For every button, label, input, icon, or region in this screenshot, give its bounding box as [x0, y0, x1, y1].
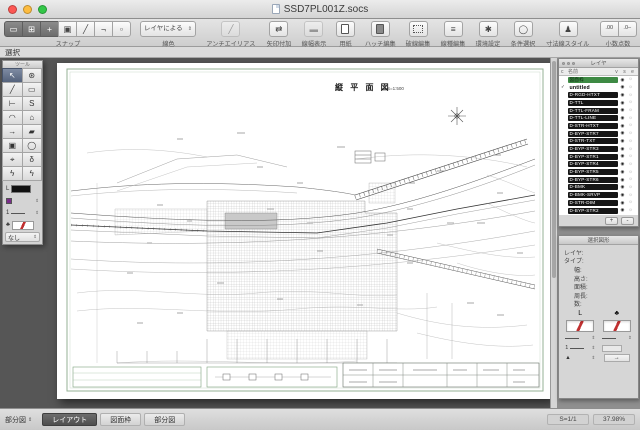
eye-icon[interactable]: ◉ — [619, 93, 626, 98]
antialias-button[interactable]: ╱ — [221, 21, 240, 37]
col-name: 名前 — [568, 68, 612, 75]
zoom-indicator[interactable]: 37.98% — [593, 414, 635, 425]
layer-row-D-BMK-SRVP[interactable]: D-BMK-SRVP◉☼ — [559, 191, 638, 199]
stepper-icon[interactable]: ⇕ — [35, 198, 39, 204]
layer-row-D-RGD-HTXT[interactable]: D-RGD-HTXT◉☼ — [559, 91, 638, 99]
right-panel-column: レイヤ c 名前 v s e 図面枠◉☼✓untitled◉☼D-RGD-HTX… — [557, 58, 640, 408]
eye-icon[interactable]: ◉ — [619, 201, 626, 206]
line-width-value: 1 — [6, 210, 9, 216]
print-icon[interactable]: ☼ — [627, 147, 634, 152]
sheet-selector-value: 部分図 — [5, 415, 26, 425]
fill-style-well[interactable] — [603, 320, 631, 332]
window-titlebar: SSD7PL001Z.socs — [0, 0, 640, 19]
layer-list: 図面枠◉☼✓untitled◉☼D-RGD-HTXT◉☼D-TTL◉☼D-TTL… — [559, 76, 638, 215]
print-icon[interactable]: ☼ — [627, 185, 634, 190]
zoom-window-button[interactable] — [38, 5, 47, 14]
hatch-edit-button[interactable] — [371, 21, 390, 37]
dashed-box-icon — [413, 25, 423, 33]
north-arrow — [448, 107, 466, 125]
dash-edit-button[interactable] — [409, 21, 428, 37]
print-icon[interactable]: ☼ — [627, 77, 634, 82]
line-color-dropdown[interactable]: レイヤによる ⇕ — [140, 21, 196, 37]
arrow-tool[interactable]: → — [2, 124, 23, 139]
print-icon[interactable]: ☼ — [627, 208, 634, 213]
window-title-text: SSD7PL001Z.socs — [284, 4, 369, 15]
layer-name-badge[interactable]: D-BMK — [568, 184, 618, 190]
line-width-display-group: ▬ 線幅表示 — [301, 21, 327, 48]
layer-name-badge[interactable]: untitled — [568, 85, 618, 91]
eye-icon[interactable]: ◉ — [619, 85, 626, 90]
arc-tool[interactable]: ◠ — [2, 110, 23, 125]
cad-drawing: 縦 平 面 図 S=1:500 — [57, 63, 551, 399]
document-icon — [272, 4, 280, 14]
pan-tool[interactable]: ⊛ — [22, 68, 43, 83]
line-attr-header: L — [578, 310, 582, 318]
layer-row-D-BMK[interactable]: D-BMK◉☼ — [559, 184, 638, 192]
tool-grid: ↖⊛╱▭⊢S◠⌂→▰▣◯⌖δϟϟ — [3, 69, 42, 181]
eye-icon[interactable]: ◉ — [619, 108, 626, 113]
tool-attribute-controls: L ⇕ 1 ⇕ ♣ なし ⇕ — [3, 181, 42, 244]
antialias-icon: ╱ — [228, 25, 233, 34]
print-icon[interactable]: ☼ — [627, 108, 634, 113]
snap-mode-2[interactable]: + — [40, 21, 59, 37]
layer-row-D-BYP-STR2[interactable]: D-BYP-STR2◉☼ — [559, 207, 638, 215]
selection-info-titlebar: 選択図形 — [559, 236, 638, 245]
info-field-4: 面積: — [564, 282, 633, 291]
image-tool[interactable]: ▣ — [2, 138, 23, 153]
hatch-edit-group: ハッチ編集 — [364, 21, 397, 48]
eye-icon[interactable]: ◉ — [619, 116, 626, 121]
eye-icon[interactable]: ◉ — [619, 162, 626, 167]
spline-tool[interactable]: S — [22, 96, 43, 111]
line-color-value: レイヤによる — [144, 26, 183, 33]
eye-icon[interactable]: ◉ — [619, 131, 626, 136]
tool-palette: ツール ↖⊛╱▭⊢S◠⌂→▰▣◯⌖δϟϟ L ⇕ 1 ⇕ ♣ — [2, 60, 43, 245]
layer-name-badge[interactable]: D-TTL — [568, 100, 618, 106]
snap-mode-6[interactable]: ▫ — [112, 21, 131, 37]
print-icon[interactable]: ☼ — [627, 193, 634, 198]
linetype-edit-group: ≡ 線種編集 — [440, 21, 466, 48]
workspace: 縦 平 面 図 S=1:500 — [0, 58, 640, 408]
eye-icon[interactable]: ◉ — [619, 147, 626, 152]
info-field-2: 幅: — [564, 265, 633, 274]
snap-mode-5[interactable]: ¬ — [94, 21, 113, 37]
layer-row-D-BYP-STR6[interactable]: D-BYP-STR6◉☼ — [559, 176, 638, 184]
window-title: SSD7PL001Z.socs — [0, 4, 640, 15]
polygon-tool[interactable]: ⌂ — [22, 110, 43, 125]
traffic-lights — [8, 5, 47, 14]
print-icon[interactable]: ☼ — [627, 200, 634, 205]
layers-palette-titlebar: レイヤ — [559, 59, 638, 68]
line-width-display-button[interactable]: ▬ — [304, 21, 323, 37]
scrollbar-thumb[interactable] — [552, 61, 556, 278]
line-style-none-preview — [12, 221, 34, 230]
layer-name-badge[interactable]: D-TTL-LINE — [568, 115, 618, 121]
print-icon[interactable]: ☼ — [627, 177, 634, 182]
line-attr-column: L ⇕ 1⇕ ▲⇕ — [563, 310, 597, 362]
layer-name-badge[interactable]: 図面枠 — [568, 77, 618, 83]
select-tool[interactable]: ↖ — [2, 68, 23, 83]
col-visible: v — [613, 69, 620, 75]
layer-row-D-TTL-FRAM[interactable]: D-TTL-FRAM◉☼ — [559, 107, 638, 115]
arrow-add-icon: ⇄ — [275, 25, 282, 34]
layer-name-badge[interactable]: D-RGD-HTXT — [568, 92, 618, 98]
pen-color-control[interactable]: ⇕ — [5, 196, 40, 206]
layer-name-badge[interactable]: D-STR-TXT — [568, 138, 618, 144]
eye-icon[interactable]: ◉ — [619, 78, 626, 83]
fill-style-stepper[interactable]: ⇕ — [602, 334, 632, 342]
stamp-icon: ♟ — [564, 25, 572, 34]
line-style-stepper[interactable]: ⇕ — [565, 334, 595, 342]
info-field-0: レイヤ: — [564, 248, 633, 257]
line-width-value: 1 — [565, 345, 568, 351]
chevron-updown-icon: ⇕ — [33, 234, 37, 240]
layer-row-D-TTL-LINE[interactable]: D-TTL-LINE◉☼ — [559, 114, 638, 122]
stepper-icon[interactable]: ⇕ — [35, 210, 39, 216]
arrow-style-dropdown[interactable]: なし ⇕ — [5, 232, 40, 242]
zap-tool-2[interactable]: ϟ — [22, 166, 43, 181]
layer-name-badge[interactable]: D-STR-HTXT — [568, 123, 618, 129]
print-icon[interactable]: ☼ — [627, 139, 634, 144]
bottom-status-bar: 部分図 ⇕ レイアウト図面枠部分図 S=1/1 37.98% — [0, 408, 640, 430]
print-icon[interactable]: ☼ — [627, 123, 634, 128]
linetype-edit-button[interactable]: ≡ — [444, 21, 463, 37]
paper-group: 用紙 — [336, 21, 355, 48]
tab-部分図[interactable]: 部分図 — [144, 413, 185, 426]
canvas-vertical-scrollbar[interactable] — [550, 58, 557, 408]
marker-stepper[interactable]: ▲⇕ — [565, 354, 595, 362]
eye-icon[interactable]: ◉ — [619, 208, 626, 213]
line-width-preview — [11, 213, 25, 214]
layer-row-D-BYP-STR3[interactable]: D-BYP-STR3◉☼ — [559, 145, 638, 153]
tab-レイアウト[interactable]: レイアウト — [42, 413, 97, 426]
layer-name-badge[interactable]: D-BYP-STR7 — [568, 131, 618, 137]
layer-name-badge[interactable]: D-BYP-STR2 — [568, 208, 618, 214]
chevron-updown-icon: ⇕ — [188, 27, 192, 32]
sheet-selector-dropdown[interactable]: 部分図 ⇕ — [5, 415, 32, 425]
print-icon[interactable]: ☼ — [627, 131, 634, 136]
eye-icon[interactable]: ◉ — [619, 154, 626, 159]
line-tool[interactable]: ╱ — [2, 82, 23, 97]
print-icon[interactable]: ☼ — [627, 154, 634, 159]
lines-icon: ≡ — [451, 25, 456, 34]
mode-label: 選択 — [5, 47, 20, 58]
tab-図面枠[interactable]: 図面枠 — [100, 413, 141, 426]
snap-mode-4[interactable]: ╱ — [76, 21, 95, 37]
arrow-end-button[interactable]: → — [604, 354, 630, 362]
info-field-3: 高さ: — [564, 274, 633, 283]
dimension-style-button[interactable]: ♟ — [559, 21, 578, 37]
snap-mode-3[interactable]: ▣ — [58, 21, 77, 37]
remove-layer-button[interactable]: - — [621, 217, 634, 225]
layer-row-D-STR-TXT[interactable]: D-STR-TXT◉☼ — [559, 138, 638, 146]
layers-palette-title: レイヤ — [559, 59, 638, 67]
layer-name-badge[interactable]: D-BMK-SRVP — [568, 192, 618, 198]
print-icon[interactable]: ☼ — [627, 170, 634, 175]
circle-tool[interactable]: ◯ — [22, 138, 43, 153]
layer-name-badge[interactable]: D-TTL-FRAM — [568, 108, 618, 114]
selection-info-title: 選択図形 — [559, 236, 638, 244]
eye-icon[interactable]: ◉ — [619, 193, 626, 198]
eye-icon[interactable]: ◉ — [619, 101, 626, 106]
print-icon[interactable]: ☼ — [627, 85, 634, 90]
layers-palette: レイヤ c 名前 v s e 図面枠◉☼✓untitled◉☼D-RGD-HTX… — [558, 58, 639, 227]
legend-title-block — [73, 363, 539, 387]
preferences-group: ✱ 環境設定 — [475, 21, 501, 48]
sheet-scale-text: S=1:500 — [387, 86, 404, 91]
eye-icon[interactable]: ◉ — [619, 178, 626, 183]
zap-tool-1[interactable]: ϟ — [2, 166, 23, 181]
layer-name-badge[interactable]: D-BYP-STR3 — [568, 146, 618, 152]
snap-segments: ▭⊞+▣╱¬▫ — [4, 21, 131, 37]
polyline-tool[interactable]: ⊢ — [2, 96, 23, 111]
layer-row-D-TTL[interactable]: D-TTL◉☼ — [559, 99, 638, 107]
marker-icon: ▲ — [565, 355, 570, 361]
decimals-segments: .00.0‒ — [600, 21, 637, 37]
layer-name-badge[interactable]: D-BYP-STR5 — [568, 169, 618, 175]
layer-check[interactable]: ✓ — [561, 85, 567, 90]
attribute-wells: L ⇕ 1⇕ ▲⇕ ♣ ⇕ → — [559, 309, 638, 363]
scale-indicator: S=1/1 — [547, 414, 589, 425]
main-toolbar: ▭⊞+▣╱¬▫ スナップ レイヤによる ⇕ 線色 ╱ アンチエイリアス ⇄ 矢印… — [0, 19, 640, 47]
layer-list-footer: + - — [559, 215, 638, 226]
mode-bar: 選択 — [0, 47, 640, 58]
layer-row-D-BYP-STR7[interactable]: D-BYP-STR7◉☼ — [559, 130, 638, 138]
conditional-select-group: ◯ 条件選択 — [510, 21, 536, 48]
print-icon[interactable]: ☼ — [627, 93, 634, 98]
layer-column-headers: c 名前 v s e — [559, 68, 638, 76]
dash-edit-group: 破線編集 — [405, 21, 431, 48]
layer-name-badge[interactable]: D-STR-DIM — [568, 200, 618, 206]
layer-row-untitled[interactable]: ✓untitled◉☼ — [559, 84, 638, 92]
fill-pattern-box[interactable] — [602, 344, 632, 352]
line-color-group: レイヤによる ⇕ 線色 — [140, 21, 196, 48]
fill-attr-header: ♣ — [614, 310, 619, 318]
info-field-5: 周長: — [564, 291, 633, 300]
layer-row-D-BYP-STR5[interactable]: D-BYP-STR5◉☼ — [559, 168, 638, 176]
snap-mode-0[interactable]: ▭ — [4, 21, 23, 37]
page-icon — [341, 24, 349, 34]
arrow-add-group: ⇄ 矢印付加 — [266, 21, 292, 48]
eye-icon[interactable]: ◉ — [619, 170, 626, 175]
layer-row-図面枠[interactable]: 図面枠◉☼ — [559, 76, 638, 84]
chevron-updown-icon: ⇕ — [28, 417, 32, 423]
measure-tool[interactable]: δ — [22, 152, 43, 167]
arrow-add-button[interactable]: ⇄ — [269, 21, 288, 37]
paper-button[interactable] — [336, 21, 355, 37]
print-icon[interactable]: ☼ — [627, 100, 634, 105]
eraser-tool[interactable]: ▰ — [22, 124, 43, 139]
pen-icon: ♣ — [6, 222, 10, 228]
line-color-swatch[interactable] — [11, 185, 31, 193]
add-layer-button[interactable]: + — [605, 217, 618, 225]
drawing-canvas[interactable]: 縦 平 面 図 S=1:500 — [0, 58, 557, 408]
fill-attr-column: ♣ ⇕ → — [600, 310, 634, 362]
annotation-boxes — [355, 151, 385, 163]
antialias-group: ╱ アンチエイリアス — [205, 21, 257, 48]
minimize-window-button[interactable] — [23, 5, 32, 14]
info-field-6: 数: — [564, 300, 633, 309]
lasso-icon: ◯ — [518, 25, 528, 34]
col-edit: e — [629, 69, 636, 75]
line-color-control[interactable]: L — [5, 184, 40, 194]
layer-row-D-BYP-STR4[interactable]: D-BYP-STR4◉☼ — [559, 161, 638, 169]
print-icon[interactable]: ☼ — [627, 162, 634, 167]
snap-mode-1[interactable]: ⊞ — [22, 21, 41, 37]
col-check: c — [561, 69, 567, 75]
sheet-tabs: レイアウト図面枠部分図 — [42, 413, 185, 426]
pen-color-swatch[interactable] — [6, 198, 12, 204]
sheet-title-text: 縦 平 面 図 — [335, 82, 391, 92]
line-width-stepper[interactable]: 1⇕ — [565, 344, 595, 352]
line-width-control[interactable]: 1 ⇕ — [5, 208, 40, 218]
gear-icon: ✱ — [485, 25, 492, 34]
layer-row-D-STR-HTXT[interactable]: D-STR-HTXT◉☼ — [559, 122, 638, 130]
eye-icon[interactable]: ◉ — [619, 139, 626, 144]
drawing-sheet[interactable]: 縦 平 面 図 S=1:500 — [57, 63, 551, 399]
eye-icon[interactable]: ◉ — [619, 185, 626, 190]
info-field-1: タイプ: — [564, 257, 633, 266]
decimals-button-0[interactable]: .00 — [600, 21, 619, 37]
layer-name-badge[interactable]: D-BYP-STR1 — [568, 154, 618, 160]
rotate-tool[interactable]: ⌖ — [2, 152, 23, 167]
selection-info-palette: 選択図形 レイヤ:タイプ:幅:高さ:面積:周長:数: L ⇕ 1⇕ ▲⇕ ♣ ⇕… — [558, 235, 639, 399]
preferences-button[interactable]: ✱ — [479, 21, 498, 37]
conditional-select-button[interactable]: ◯ — [514, 21, 533, 37]
layer-row-D-STR-DIM[interactable]: D-STR-DIM◉☼ — [559, 199, 638, 207]
hatch-page-icon — [376, 24, 384, 34]
layer-name-badge[interactable]: D-BYP-STR4 — [568, 161, 618, 167]
snap-group: ▭⊞+▣╱¬▫ スナップ — [4, 21, 131, 48]
col-snap: s — [621, 69, 628, 75]
eye-icon[interactable]: ◉ — [619, 124, 626, 129]
line-style-control[interactable]: ♣ — [5, 220, 40, 230]
layer-name-badge[interactable]: D-BYP-STR6 — [568, 177, 618, 183]
line-class-label: L — [6, 186, 9, 192]
selection-info-fields: レイヤ:タイプ:幅:高さ:面積:周長:数: — [559, 245, 638, 309]
close-window-button[interactable] — [8, 5, 17, 14]
rect-tool[interactable]: ▭ — [22, 82, 43, 97]
print-icon[interactable]: ☼ — [627, 116, 634, 121]
line-style-well[interactable] — [566, 320, 594, 332]
status-right: S=1/1 37.98% — [547, 414, 635, 425]
dimension-style-group: ♟ 寸法線スタイル — [545, 21, 591, 48]
line-width-display-icon: ▬ — [310, 25, 319, 34]
layer-row-D-BYP-STR1[interactable]: D-BYP-STR1◉☼ — [559, 153, 638, 161]
decimals-button-1[interactable]: .0‒ — [618, 21, 637, 37]
arrow-style-value: なし — [8, 233, 20, 242]
decimals-group: .00.0‒ 小数点数 — [600, 21, 637, 48]
